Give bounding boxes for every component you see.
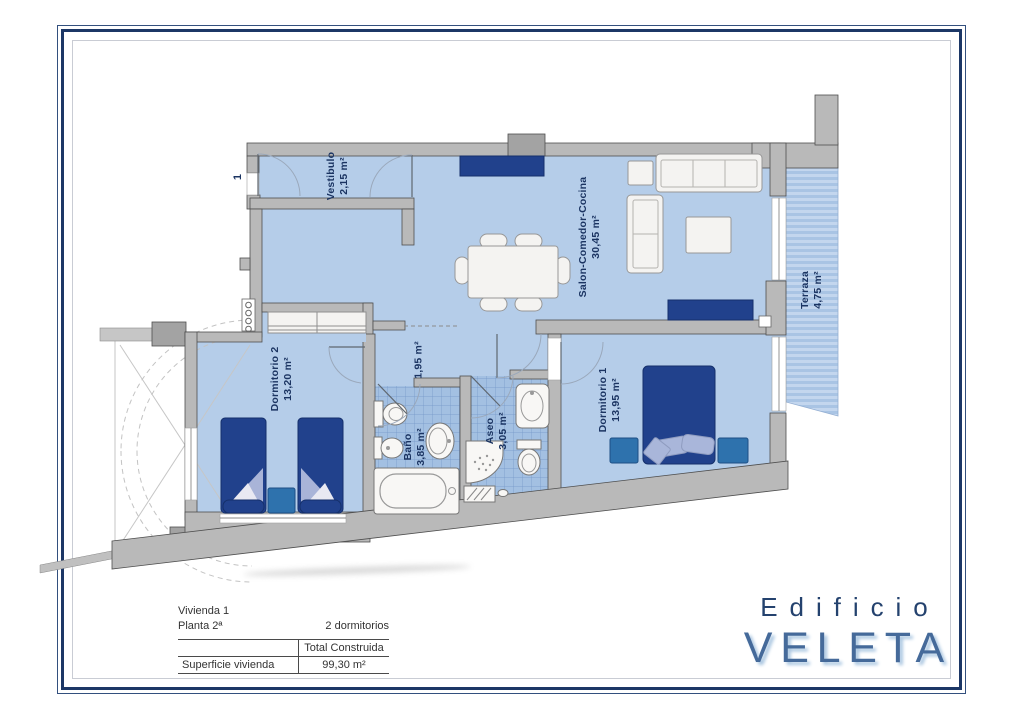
room-label-dormitorio2: Dormitorio 213,20 m² [269, 347, 295, 412]
building-logo: Edificio VELETA [726, 592, 962, 673]
logo-line-edificio: Edificio [726, 592, 962, 623]
column-header: Total Construida [298, 640, 389, 656]
wardrobe [268, 312, 366, 333]
floor-label: Planta 2ª [178, 619, 222, 634]
room-label-bano: Baño3,85 m² [402, 428, 428, 466]
tv-sideboard [668, 300, 753, 320]
room-label-dormitorio1: Dormitorio 113,95 m² [597, 368, 623, 433]
bedrooms-label: 2 dormitorios [325, 619, 389, 634]
room-label-aseo: Aseo3,05 m² [484, 412, 510, 450]
bathtub [374, 468, 459, 514]
plan-sheet: 1 Vestibulo2,15 m² Salon-Comedor-Cocina3… [0, 0, 1024, 719]
nightstand [610, 438, 638, 463]
side-table [628, 161, 653, 185]
bidet [374, 437, 403, 459]
empty-cell [178, 640, 298, 656]
room-label-vestibulo: Vestibulo2,15 m² [325, 152, 351, 200]
coffee-table [686, 217, 731, 253]
toilet [374, 401, 407, 427]
surface-value: 99,30 m² [298, 657, 389, 673]
room-label-terraza: Terraza4,75 m² [799, 271, 825, 309]
surface-label: Superficie vivienda [178, 657, 298, 673]
room-label-salon: Salon-Comedor-Cocina30,45 m² [577, 177, 603, 298]
unit-info-table: Vivienda 1 Planta 2ª 2 dormitorios Total… [178, 604, 389, 674]
radiator [242, 299, 255, 332]
aseo-washbasin [516, 384, 549, 428]
logo-line-veleta: VELETA [726, 624, 962, 673]
sofa-large [656, 154, 762, 192]
unit-number-label: 1 [232, 174, 246, 180]
kitchen-counter [460, 156, 544, 176]
sofa-small [627, 195, 663, 273]
room-label-pasillo: 1,95 m² [412, 341, 425, 379]
unit-name: Vivienda 1 [178, 604, 389, 619]
aseo-toilet [517, 440, 541, 475]
nightstand [268, 488, 295, 513]
washbasin [426, 423, 454, 459]
nightstand [718, 438, 748, 463]
